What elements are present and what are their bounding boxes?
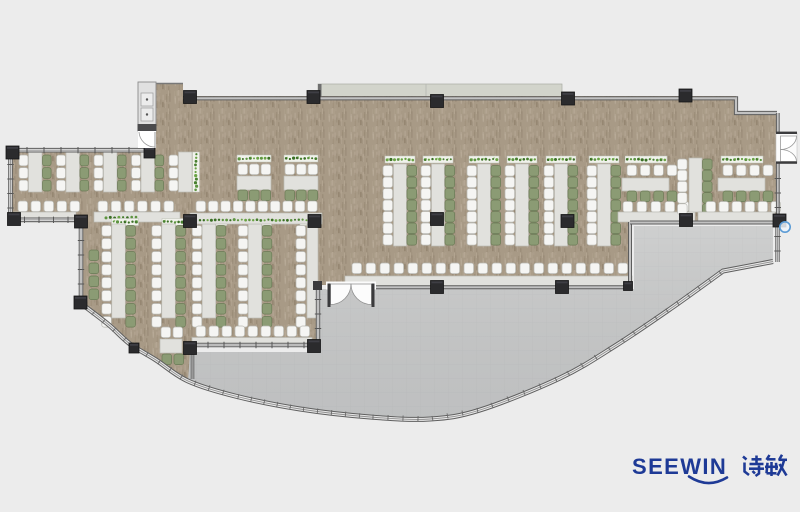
svg-text:SEEWIN: SEEWIN bbox=[632, 454, 727, 479]
